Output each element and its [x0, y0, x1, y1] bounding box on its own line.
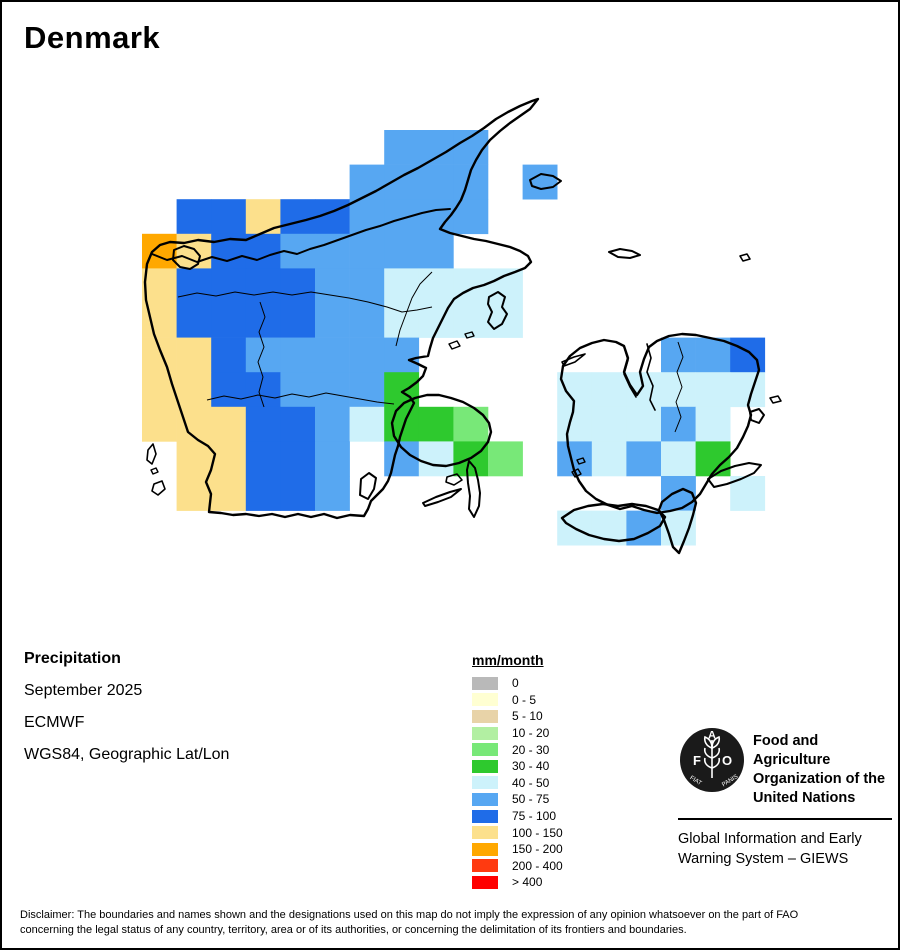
legend-swatch — [472, 810, 498, 823]
legend-label: 5 - 10 — [512, 709, 543, 723]
map-cell — [211, 372, 246, 407]
map-cell — [211, 476, 246, 511]
legend-label: 100 - 150 — [512, 826, 563, 840]
map-cell — [557, 407, 592, 442]
legend-rows: 00 - 55 - 1010 - 2020 - 3030 - 4040 - 50… — [472, 675, 563, 891]
map-cell — [280, 199, 315, 234]
legend-swatch — [472, 793, 498, 806]
fao-org-line: United Nations — [753, 789, 892, 808]
map-cell — [177, 372, 212, 407]
map-cell — [142, 407, 177, 442]
map-cell — [280, 407, 315, 442]
map-cell — [350, 268, 385, 303]
giews-line: Warning System – GIEWS — [678, 849, 892, 869]
info-projection: WGS84, Geographic Lat/Lon — [24, 746, 229, 764]
legend-label: 200 - 400 — [512, 859, 563, 873]
map-cell — [177, 199, 212, 234]
legend-label: 0 - 5 — [512, 693, 536, 707]
legend-title: mm/month — [472, 652, 563, 668]
map-cell — [246, 441, 281, 476]
map-cell — [592, 372, 627, 407]
denmark-map — [2, 2, 900, 632]
map-cell — [315, 372, 350, 407]
giews-line: Global Information and Early — [678, 829, 892, 849]
map-cell — [419, 441, 454, 476]
map-cell — [419, 130, 454, 165]
legend-label: 50 - 75 — [512, 792, 549, 806]
map-cell — [315, 234, 350, 269]
coastline-anholt — [609, 249, 640, 258]
map-cell — [419, 407, 454, 442]
legend-row: 0 — [472, 675, 563, 692]
legend-label: > 400 — [512, 875, 542, 889]
legend-swatch — [472, 727, 498, 740]
map-cell — [453, 407, 488, 442]
legend-label: 20 - 30 — [512, 743, 549, 757]
map-cell — [280, 268, 315, 303]
map-cell — [211, 268, 246, 303]
legend-swatch — [472, 760, 498, 773]
map-cell — [488, 441, 523, 476]
map-cell — [592, 407, 627, 442]
fao-logo-letter-f: F — [693, 753, 701, 768]
map-cell — [246, 268, 281, 303]
map-cell — [419, 268, 454, 303]
disclaimer-line: concerning the legal status of any count… — [20, 923, 880, 938]
map-cell — [592, 441, 627, 476]
map-cell — [384, 407, 419, 442]
fao-org-line: Organization of the — [753, 770, 892, 789]
map-cell — [315, 338, 350, 373]
legend-row: 75 - 100 — [472, 808, 563, 825]
map-cell — [661, 441, 696, 476]
disclaimer: Disclaimer: The boundaries and names sho… — [20, 908, 880, 938]
map-cell — [384, 268, 419, 303]
legend-row: 30 - 40 — [472, 758, 563, 775]
map-cell — [211, 199, 246, 234]
legend-swatch — [472, 826, 498, 839]
map-cell — [384, 130, 419, 165]
coastline-saltholm — [770, 396, 781, 403]
giews-label: Global Information and Early Warning Sys… — [678, 829, 892, 869]
map-cell — [280, 338, 315, 373]
legend-row: 200 - 400 — [472, 858, 563, 875]
coastline-amager — [750, 409, 764, 423]
info-source: ECMWF — [24, 714, 229, 732]
precipitation-cells-layer — [142, 130, 765, 546]
info-period: September 2025 — [24, 682, 229, 700]
coastline-aeroe — [423, 489, 461, 506]
map-cell — [211, 441, 246, 476]
map-cell — [488, 303, 523, 338]
legend-row: 40 - 50 — [472, 775, 563, 792]
fao-org-name: Food and Agriculture Organization of the… — [753, 732, 892, 808]
fao-footer-block: F A O FIAT PANIS Food and Agriculture Or… — [678, 726, 892, 869]
legend-label: 75 - 100 — [512, 809, 556, 823]
map-cell — [696, 372, 731, 407]
coastline-mandoe — [151, 468, 158, 474]
info-layer-name: Precipitation — [24, 650, 229, 668]
legend-row: 150 - 200 — [472, 841, 563, 858]
legend-label: 40 - 50 — [512, 776, 549, 790]
map-cell — [626, 441, 661, 476]
map-cell — [384, 338, 419, 373]
map-cell — [696, 338, 731, 373]
legend-label: 30 - 40 — [512, 759, 549, 773]
map-cell — [142, 268, 177, 303]
legend-row: 50 - 75 — [472, 791, 563, 808]
map-info-block: Precipitation September 2025 ECMWF WGS84… — [24, 650, 229, 778]
map-page: Denmark — [0, 0, 900, 950]
coastline-roemoe — [152, 481, 165, 495]
disclaimer-line: Disclaimer: The boundaries and names sho… — [20, 908, 880, 923]
legend-label: 150 - 200 — [512, 842, 563, 856]
legend-swatch — [472, 743, 498, 756]
coastline-endelave — [449, 341, 460, 349]
legend-row: 0 - 5 — [472, 692, 563, 709]
map-cell — [280, 476, 315, 511]
legend-row: 5 - 10 — [472, 708, 563, 725]
map-cell — [177, 234, 212, 269]
map-cell — [384, 234, 419, 269]
footer-divider — [678, 818, 892, 820]
fao-org-line: Food and Agriculture — [753, 732, 892, 770]
map-cell — [211, 407, 246, 442]
coastline-islet-kattegat — [740, 254, 750, 261]
map-cell — [523, 165, 558, 200]
map-cell — [211, 303, 246, 338]
legend-row: > 400 — [472, 874, 563, 891]
map-cell — [730, 338, 765, 373]
map-cell — [384, 199, 419, 234]
map-cell — [419, 165, 454, 200]
fao-logo-letter-a: A — [708, 730, 716, 742]
legend-row: 100 - 150 — [472, 824, 563, 841]
map-cell — [350, 234, 385, 269]
map-cell — [350, 303, 385, 338]
map-cell — [280, 372, 315, 407]
map-cell — [177, 268, 212, 303]
map-cell — [626, 407, 661, 442]
coastline-als — [360, 473, 376, 499]
map-cell — [177, 338, 212, 373]
map-cell — [246, 476, 281, 511]
legend-row: 20 - 30 — [472, 741, 563, 758]
map-cell — [315, 441, 350, 476]
coastline-fanoe — [147, 444, 156, 464]
legend: mm/month 00 - 55 - 1010 - 2020 - 3030 - … — [472, 652, 563, 891]
map-cell — [211, 338, 246, 373]
map-cell — [350, 338, 385, 373]
map-cell — [246, 338, 281, 373]
map-cell — [315, 268, 350, 303]
legend-label: 0 — [512, 676, 519, 690]
map-cell — [142, 338, 177, 373]
legend-swatch — [472, 677, 498, 690]
map-cell — [419, 234, 454, 269]
legend-row: 10 - 20 — [472, 725, 563, 742]
map-cell — [177, 303, 212, 338]
map-cell — [142, 372, 177, 407]
map-cell — [177, 441, 212, 476]
legend-swatch — [472, 843, 498, 856]
legend-swatch — [472, 710, 498, 723]
map-cell — [280, 441, 315, 476]
map-cell — [315, 407, 350, 442]
map-cell — [696, 407, 731, 442]
legend-swatch — [472, 693, 498, 706]
legend-swatch — [472, 876, 498, 889]
legend-label: 10 - 20 — [512, 726, 549, 740]
fao-logo-row: F A O FIAT PANIS Food and Agriculture Or… — [678, 726, 892, 808]
map-cell — [246, 407, 281, 442]
legend-swatch — [472, 776, 498, 789]
map-cell — [350, 407, 385, 442]
map-cell — [280, 303, 315, 338]
map-cell — [315, 476, 350, 511]
map-cell — [315, 303, 350, 338]
fao-logo-letter-o: O — [722, 753, 732, 768]
fao-logo-icon: F A O FIAT PANIS — [678, 726, 746, 794]
legend-swatch — [472, 859, 498, 872]
